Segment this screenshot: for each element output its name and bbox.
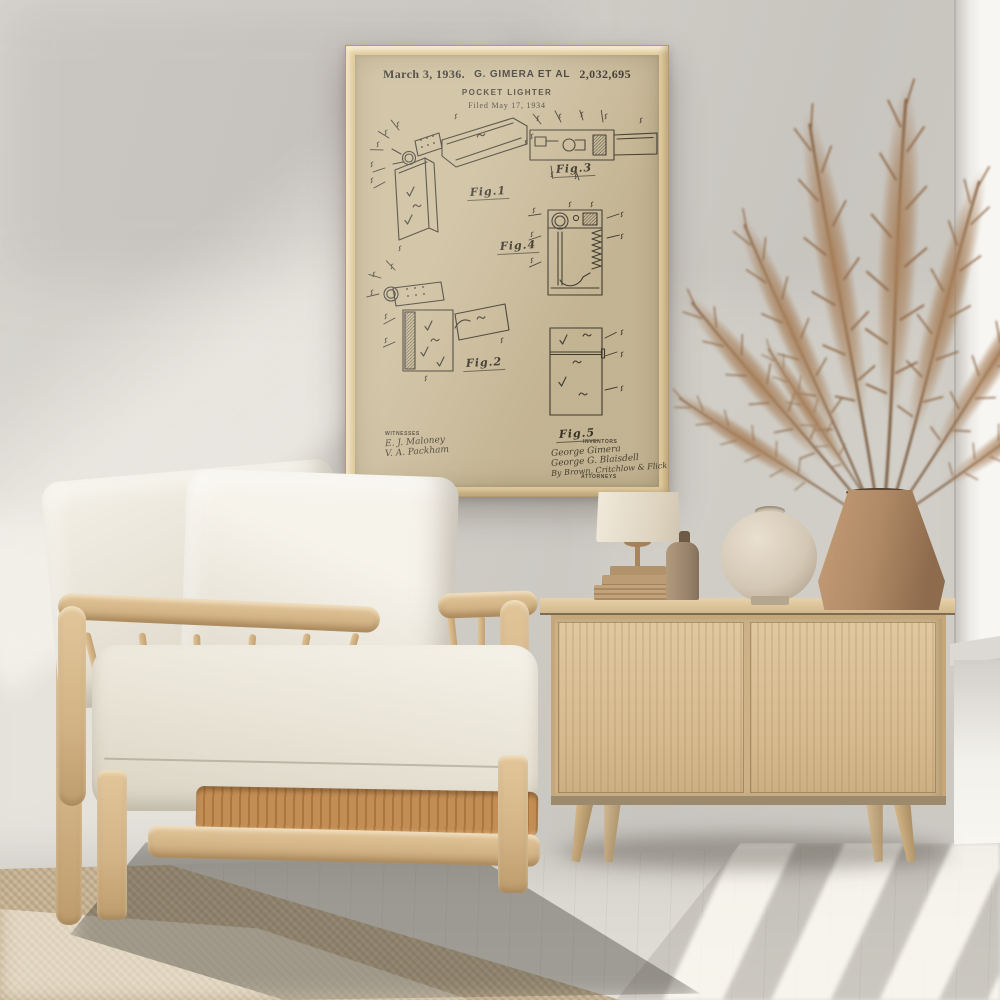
sideboard-door-left (558, 622, 744, 793)
living-room-photo: March 3, 1936. G. GIMERA ET AL 2,032,695… (0, 0, 1000, 1000)
poster-light-reflection (355, 55, 659, 487)
seat-cushion (92, 645, 538, 811)
sideboard-door-right (750, 622, 936, 793)
chair-arm-post-left (58, 606, 86, 806)
striped-bottle (666, 542, 699, 600)
round-vase-foot (751, 596, 789, 605)
patent-poster-frame: March 3, 1936. G. GIMERA ET AL 2,032,695… (345, 45, 669, 497)
lamp-shade (596, 492, 681, 542)
round-vase (721, 511, 817, 603)
chair-leg-front-right (498, 755, 528, 893)
patent-poster-paper: March 3, 1936. G. GIMERA ET AL 2,032,695… (355, 55, 659, 487)
sideboard-bottom-rail (551, 796, 946, 805)
window-frame (954, 0, 1000, 650)
chair-leg-front-left (97, 770, 127, 920)
sideboard-shadow (560, 834, 950, 870)
window-wall-lower (954, 660, 1000, 846)
